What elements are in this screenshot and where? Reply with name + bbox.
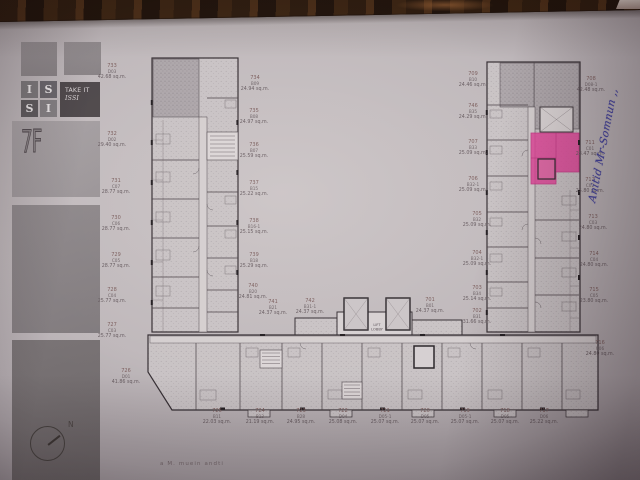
highlighted-unit-inner-room (538, 159, 555, 179)
core-above-highlight (540, 107, 573, 132)
unit-733-dark-area (153, 59, 199, 117)
floor-plan: LIFT LOBBY (0, 0, 640, 480)
stairs-bottom-2 (342, 382, 362, 399)
bottom-corridor (150, 336, 596, 343)
service-shaft (414, 346, 434, 368)
bottom-partial-text: a M. muein andti (160, 461, 224, 467)
lift-lobby-label-1: LIFT (373, 323, 381, 327)
lift-lobby-label-2: LOBBY (371, 328, 383, 332)
right-wing (487, 62, 580, 332)
balconies (248, 410, 588, 417)
left-wing-corridor (199, 117, 207, 332)
stairs-left-wing (207, 132, 238, 160)
stairs-bottom-1 (260, 350, 282, 368)
bottom-bar (148, 335, 598, 417)
left-wing (152, 58, 238, 332)
